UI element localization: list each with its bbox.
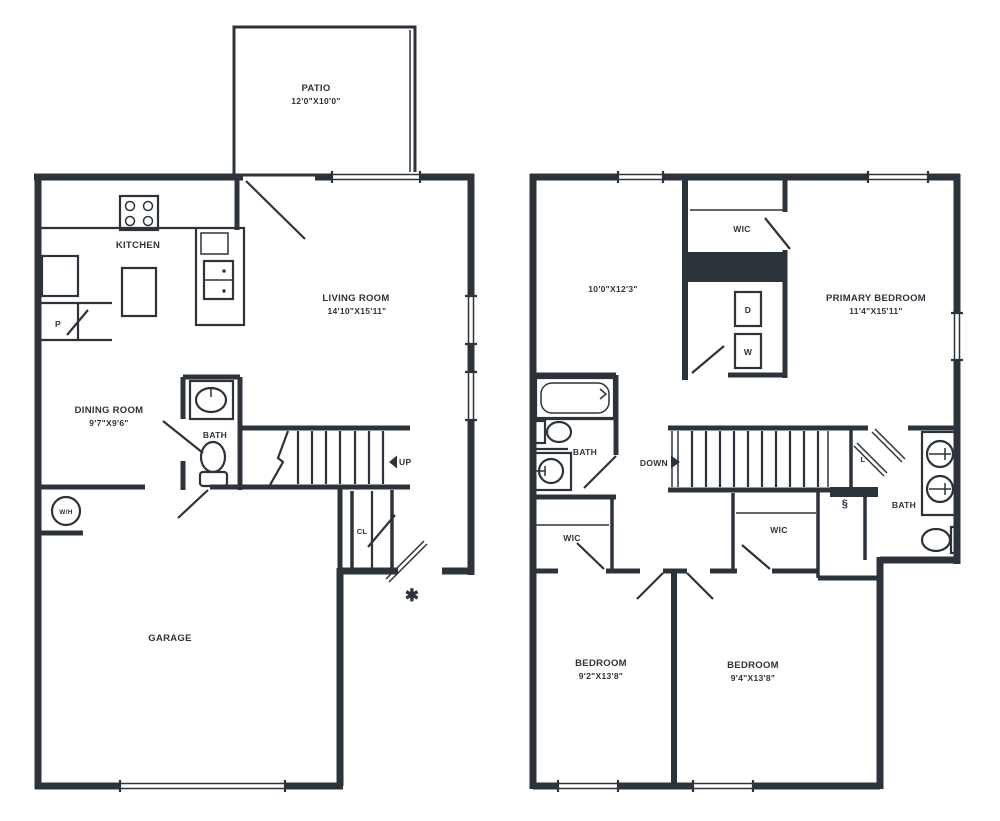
pantry-label: P xyxy=(55,319,61,329)
patio-dims: 12'0"X10'0" xyxy=(291,96,340,106)
floor2-bath-left-fixtures xyxy=(533,378,614,490)
burner-icon xyxy=(144,202,153,211)
window xyxy=(951,313,963,360)
floor2-bath-right-fixtures xyxy=(922,432,959,553)
note-symbol: § xyxy=(842,498,848,510)
down-label: DOWN xyxy=(640,458,668,468)
faucet-icon xyxy=(929,483,951,495)
garage-label: GARAGE xyxy=(148,633,192,644)
bedroom-right-dims: 9'4"X13'8" xyxy=(731,673,775,683)
water-heater: W/H xyxy=(52,497,80,525)
hall-wall-block xyxy=(830,487,878,497)
water-heater-label: W/H xyxy=(59,509,73,516)
bedroom-right-label: BEDROOM xyxy=(727,660,779,671)
laundry-closet: D W xyxy=(735,292,761,368)
stair-treads xyxy=(692,431,818,487)
first-floor: W/H PATIO 12'0"X10'0" KITCHEN LIVING ROO… xyxy=(34,27,477,792)
double-door-leaf xyxy=(854,429,905,476)
kitchen-sink-icon xyxy=(201,233,228,254)
tub-faucet-icon xyxy=(600,389,606,399)
floor2-stairs xyxy=(671,431,828,487)
living-room-dims: 14'10"X15'11" xyxy=(327,306,386,316)
burner-icon xyxy=(126,202,135,211)
window xyxy=(868,171,928,183)
living-room-label: LIVING ROOM xyxy=(322,293,389,304)
pantry-walls xyxy=(38,303,112,340)
knob-dot xyxy=(222,269,225,272)
window xyxy=(465,296,477,344)
window xyxy=(558,780,618,792)
kitchen-island xyxy=(122,268,156,316)
loft-room-dims: 10'0"X12'3" xyxy=(588,284,637,294)
bedroom-left-label: BEDROOM xyxy=(575,658,627,669)
faucet-icon xyxy=(929,448,951,460)
stair-treads xyxy=(298,431,383,484)
toilet-icon xyxy=(201,442,225,472)
wic-left-label: WIC xyxy=(563,533,580,543)
wall-segments xyxy=(34,174,474,789)
bath-label: BATH xyxy=(203,430,227,440)
floor1-stairs xyxy=(270,431,397,485)
dining-room-dims: 9'7"X9'6" xyxy=(89,418,128,428)
floor-plan-page: W/H PATIO 12'0"X10'0" KITCHEN LIVING ROO… xyxy=(0,0,1000,821)
toilet-tank xyxy=(200,472,227,486)
floor1-labels: PATIO 12'0"X10'0" KITCHEN LIVING ROOM 14… xyxy=(55,83,419,644)
wic-right-label: WIC xyxy=(770,525,787,535)
up-label: UP xyxy=(399,457,411,467)
knob-dot xyxy=(222,289,225,292)
wic-top-label: WIC xyxy=(733,224,750,234)
tub-icon xyxy=(541,383,609,413)
window xyxy=(465,372,477,420)
kitchen-label: KITCHEN xyxy=(116,240,160,251)
bedroom-left-dims: 9'2"X13'8" xyxy=(579,671,623,681)
garage-door xyxy=(120,780,285,792)
door-leaf xyxy=(67,181,395,547)
up-arrow-icon xyxy=(389,456,397,469)
bath-left-label: BATH xyxy=(573,447,597,457)
stair-break-line xyxy=(270,431,288,485)
window xyxy=(618,171,663,183)
floor2-interior-walls xyxy=(533,177,957,786)
dryer-label: D xyxy=(745,305,751,315)
closet-label: CL xyxy=(357,527,368,536)
patio-label: PATIO xyxy=(301,83,330,94)
dining-room-label: DINING ROOM xyxy=(75,405,144,416)
burner-icon xyxy=(144,217,153,226)
window xyxy=(693,780,753,792)
burner-icon xyxy=(126,217,135,226)
fridge-nook xyxy=(42,256,78,296)
entry-marker: ✱ xyxy=(405,586,420,605)
linen-label: L xyxy=(861,455,866,464)
wall-segments xyxy=(612,428,865,578)
toilet-icon xyxy=(547,422,571,442)
floor1-interior-walls xyxy=(35,177,410,571)
bath-right-label: BATH xyxy=(892,500,916,510)
washer-label: W xyxy=(744,347,753,357)
window xyxy=(332,171,420,183)
kitchen-fixtures xyxy=(38,196,244,340)
stove-icon xyxy=(120,196,158,230)
toilet-icon xyxy=(922,529,950,551)
primary-bedroom-label: PRIMARY BEDROOM xyxy=(826,293,926,304)
second-floor: D W 10'0"X12'3" WIC PRIMARY BEDROOM 11'4… xyxy=(530,171,963,792)
primary-bedroom-dims: 11'4"X15'11" xyxy=(849,306,903,316)
floor-plan-svg: W/H PATIO 12'0"X10'0" KITCHEN LIVING ROO… xyxy=(0,0,1000,821)
floor1-exterior-walls xyxy=(34,174,474,789)
wic-wall-block xyxy=(682,252,786,282)
